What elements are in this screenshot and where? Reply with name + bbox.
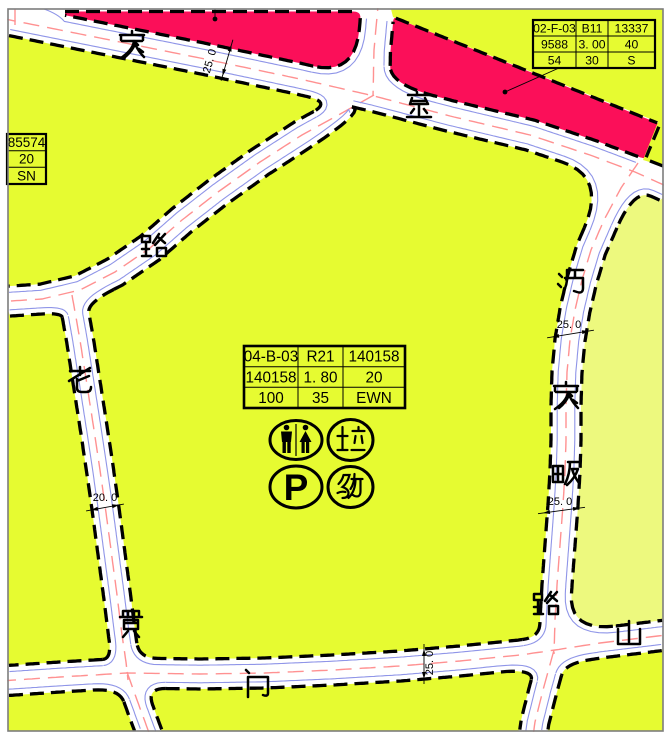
- svg-text:P: P: [284, 467, 309, 508]
- svg-text:02-F-03: 02-F-03: [533, 21, 576, 35]
- svg-text:20. 0: 20. 0: [93, 492, 117, 504]
- svg-text:35: 35: [312, 390, 329, 407]
- svg-text:20: 20: [19, 152, 34, 167]
- svg-text:20: 20: [365, 369, 382, 386]
- svg-text:S: S: [627, 53, 635, 67]
- svg-text:3. 00: 3. 00: [578, 37, 605, 51]
- svg-text:R21: R21: [306, 349, 334, 366]
- svg-text:85574: 85574: [8, 135, 46, 150]
- svg-text:25. 0: 25. 0: [424, 651, 436, 675]
- svg-text:54: 54: [548, 53, 562, 67]
- svg-text:EWN: EWN: [356, 390, 392, 407]
- svg-text:25. 0: 25. 0: [548, 496, 572, 508]
- svg-text:40: 40: [625, 37, 639, 51]
- svg-text:30: 30: [585, 53, 599, 67]
- svg-text:25. 0: 25. 0: [557, 319, 581, 331]
- svg-text:140158: 140158: [245, 369, 296, 386]
- svg-text:140158: 140158: [348, 349, 399, 366]
- svg-text:04-B-03: 04-B-03: [244, 349, 298, 366]
- svg-text:SN: SN: [17, 168, 36, 183]
- svg-text:1. 80: 1. 80: [303, 369, 337, 386]
- svg-text:100: 100: [258, 390, 284, 407]
- svg-text:9588: 9588: [541, 37, 568, 51]
- svg-text:13337: 13337: [615, 21, 649, 35]
- svg-text:B11: B11: [582, 21, 603, 35]
